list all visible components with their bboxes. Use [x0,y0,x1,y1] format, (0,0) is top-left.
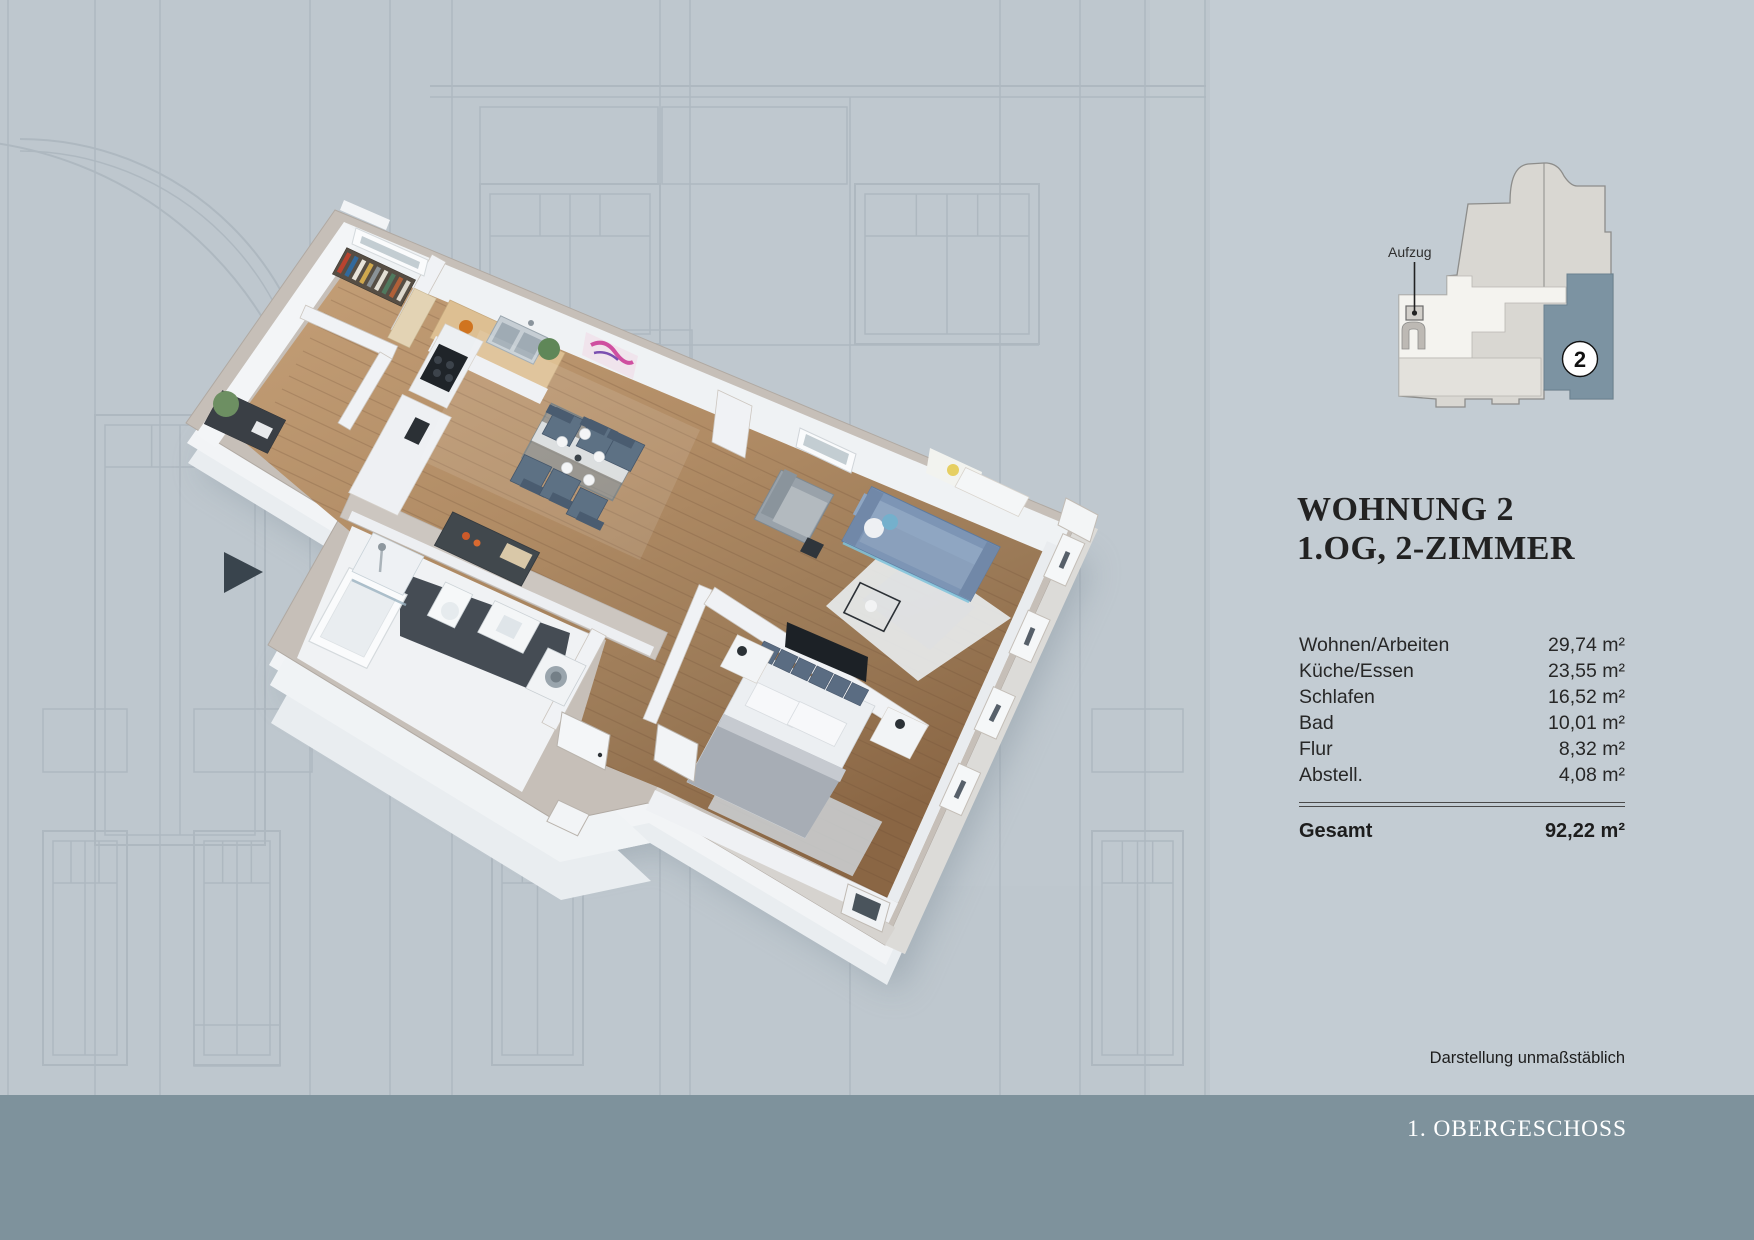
svg-text:2: 2 [1574,347,1586,372]
svg-text:Aufzug: Aufzug [1388,244,1432,260]
